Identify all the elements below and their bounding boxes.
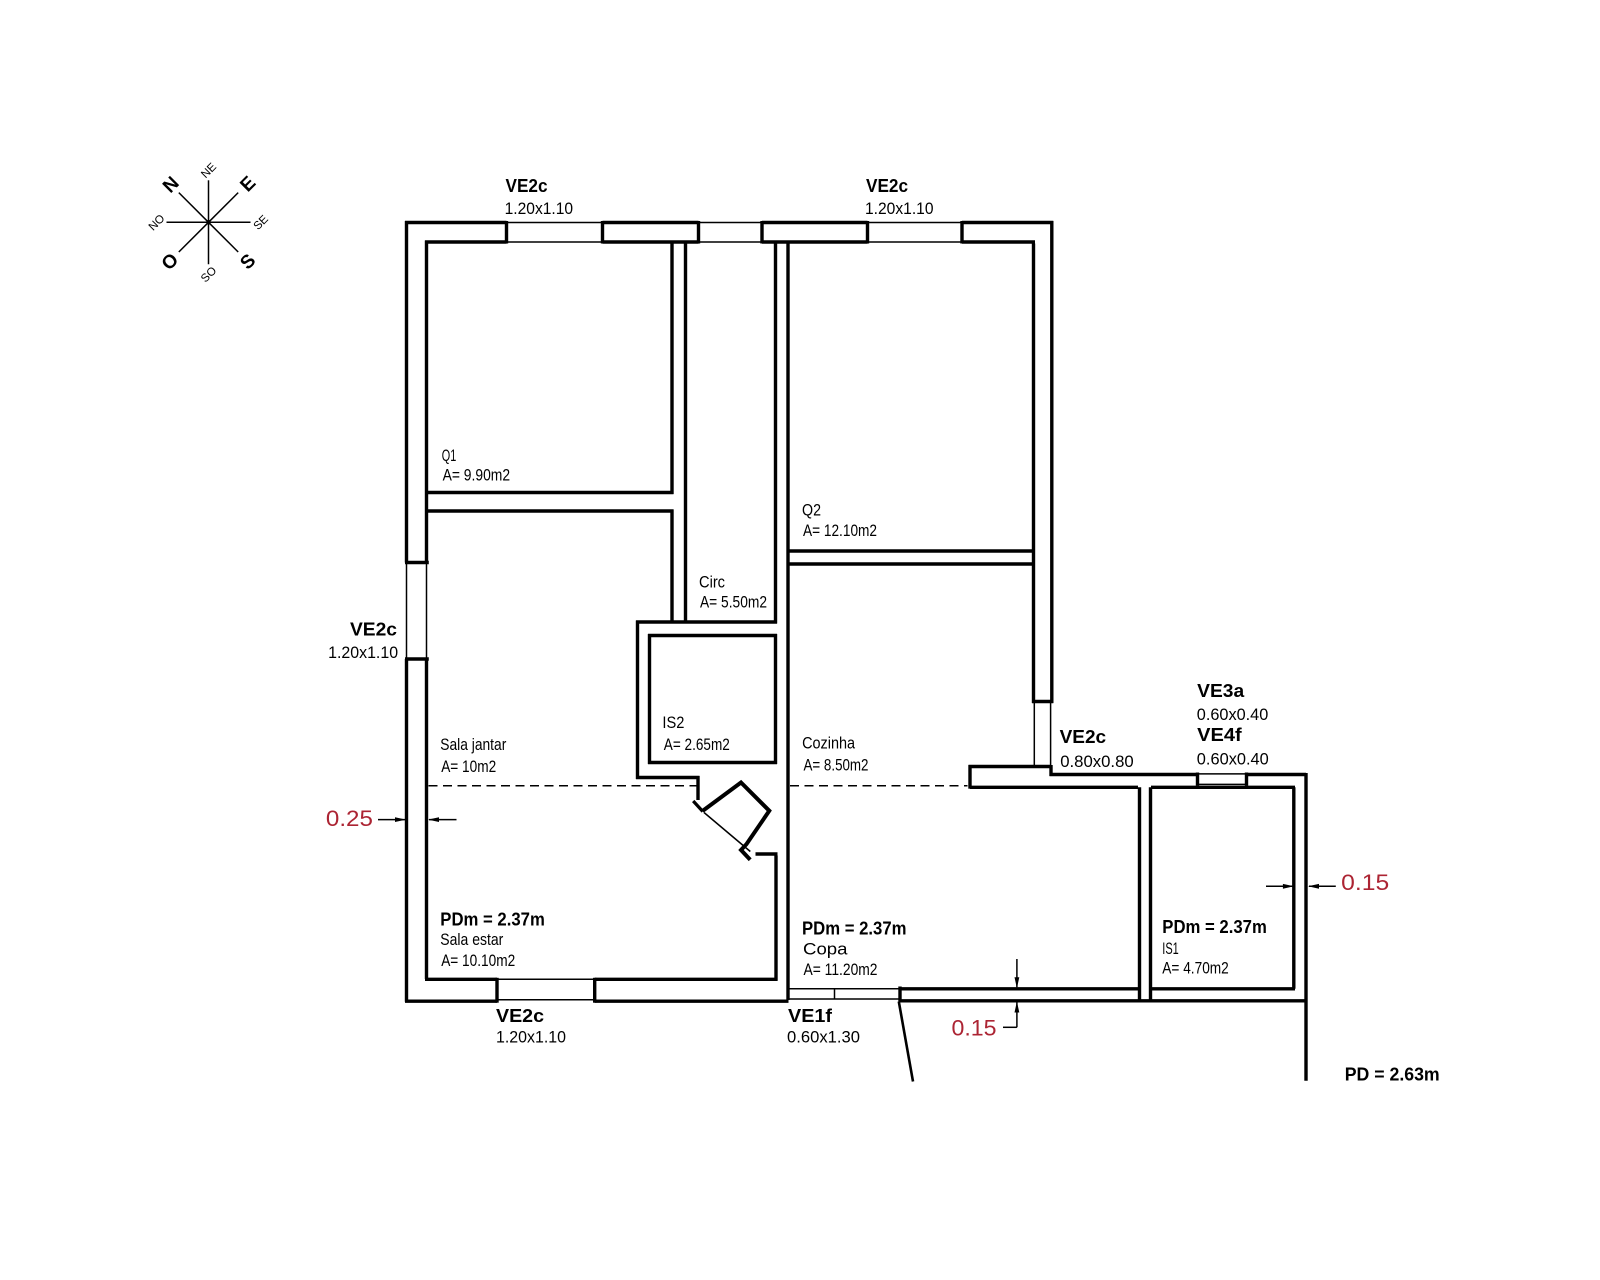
svg-text:VE2c: VE2c — [1060, 727, 1107, 747]
svg-text:IS2: IS2 — [662, 713, 684, 732]
svg-text:Circ: Circ — [699, 573, 725, 592]
svg-text:VE2c: VE2c — [496, 1006, 544, 1026]
svg-text:Cozinha: Cozinha — [802, 734, 855, 753]
svg-text:0.80x0.80: 0.80x0.80 — [1060, 752, 1134, 771]
svg-text:A= 2.65m2: A= 2.65m2 — [664, 735, 730, 754]
svg-text:Q1: Q1 — [442, 446, 457, 465]
svg-text:0.15: 0.15 — [1341, 870, 1389, 895]
svg-text:A= 10.10m2: A= 10.10m2 — [441, 951, 515, 970]
svg-text:0.25: 0.25 — [326, 806, 373, 831]
svg-text:VE4f: VE4f — [1197, 725, 1243, 745]
svg-text:VE2c: VE2c — [866, 176, 908, 196]
svg-text:A= 9.90m2: A= 9.90m2 — [443, 465, 511, 484]
svg-text:Sala jantar: Sala jantar — [440, 735, 506, 754]
svg-text:1.20x1.10: 1.20x1.10 — [865, 199, 934, 218]
svg-text:PDm = 2.37m: PDm = 2.37m — [802, 918, 907, 938]
svg-text:A= 5.50m2: A= 5.50m2 — [700, 593, 767, 612]
svg-text:PDm = 2.37m: PDm = 2.37m — [1162, 917, 1267, 937]
svg-text:PDm = 2.37m: PDm = 2.37m — [440, 910, 545, 930]
svg-text:VE2c: VE2c — [506, 176, 548, 196]
svg-text:Q2: Q2 — [802, 501, 821, 520]
svg-text:0.60x0.40: 0.60x0.40 — [1197, 705, 1269, 724]
svg-text:1.20x1.10: 1.20x1.10 — [328, 643, 398, 662]
svg-text:1.20x1.10: 1.20x1.10 — [496, 1028, 566, 1047]
svg-text:A= 11.20m2: A= 11.20m2 — [804, 960, 878, 979]
svg-text:1.20x1.10: 1.20x1.10 — [505, 199, 573, 218]
svg-text:VE2c: VE2c — [350, 619, 397, 639]
svg-text:A= 12.10m2: A= 12.10m2 — [803, 521, 877, 540]
svg-text:Copa: Copa — [803, 939, 848, 958]
svg-text:VE3a: VE3a — [1197, 681, 1245, 701]
svg-text:VE1f: VE1f — [788, 1006, 833, 1026]
svg-text:0.60x0.40: 0.60x0.40 — [1197, 750, 1269, 769]
svg-text:A= 8.50m2: A= 8.50m2 — [804, 756, 869, 775]
svg-text:Sala estar: Sala estar — [440, 930, 503, 949]
svg-text:PD = 2.63m: PD = 2.63m — [1345, 1064, 1440, 1084]
svg-text:0.15: 0.15 — [952, 1016, 997, 1041]
svg-text:IS1: IS1 — [1162, 939, 1179, 958]
svg-text:0.60x1.30: 0.60x1.30 — [787, 1028, 860, 1047]
svg-text:A= 4.70m2: A= 4.70m2 — [1162, 959, 1229, 978]
svg-text:A= 10m2: A= 10m2 — [441, 757, 496, 776]
